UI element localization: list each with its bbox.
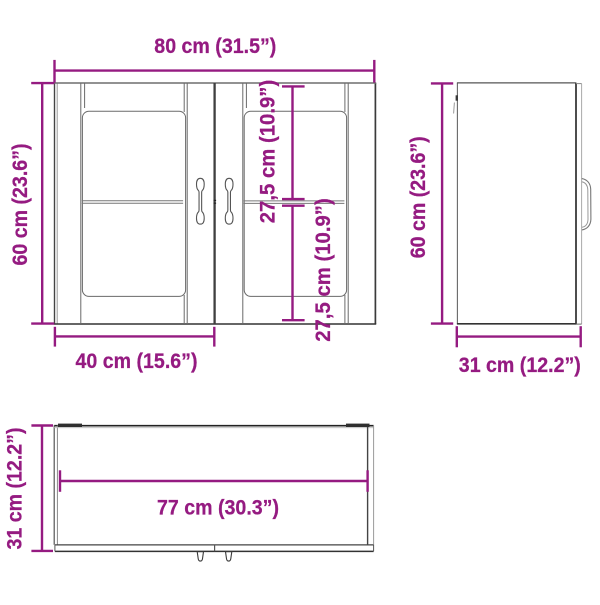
svg-text:27,5 cm (10.9”): 27,5 cm (10.9”) <box>257 80 280 224</box>
svg-text:60 cm (23.6”): 60 cm (23.6”) <box>407 136 430 258</box>
svg-text:60 cm (23.6”): 60 cm (23.6”) <box>9 144 32 266</box>
svg-text:80 cm (31.5”): 80 cm (31.5”) <box>154 35 276 58</box>
svg-text:31 cm (12.2”): 31 cm (12.2”) <box>459 354 581 377</box>
svg-text:31 cm (12.2”): 31 cm (12.2”) <box>3 428 26 550</box>
svg-text:40 cm (15.6”): 40 cm (15.6”) <box>76 350 198 373</box>
svg-text:77 cm (30.3”): 77 cm (30.3”) <box>157 496 279 519</box>
svg-text:27,5 cm (10.9”): 27,5 cm (10.9”) <box>312 198 335 342</box>
